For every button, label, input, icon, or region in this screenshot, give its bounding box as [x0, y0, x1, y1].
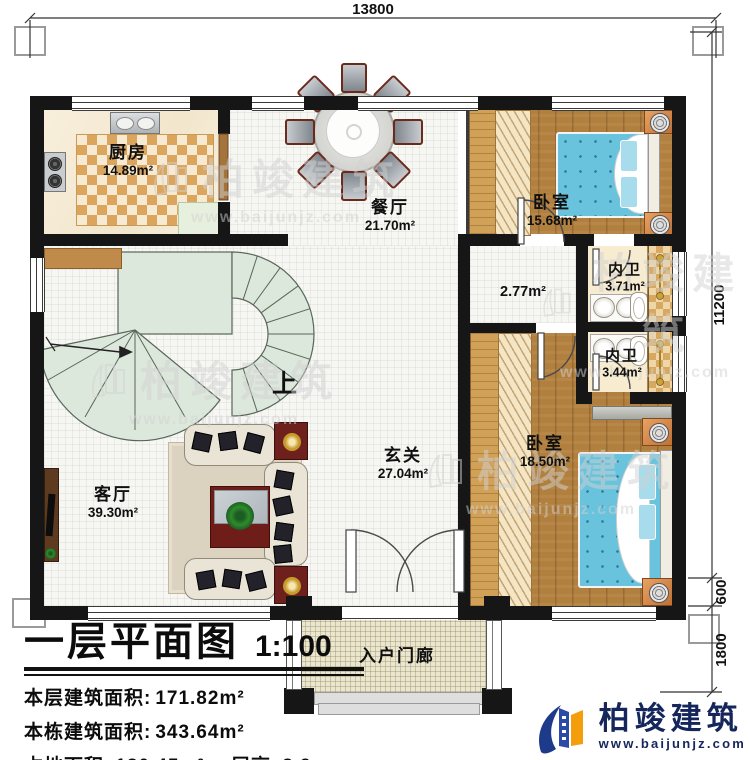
room-label-bath2: 内卫 3.44m²: [602, 345, 642, 380]
brand-name: 柏竣建筑: [599, 703, 746, 736]
room-label-foyer: 玄关27.04m²: [378, 441, 428, 481]
title-block: 一层平面图 1:100 本层建筑面积:171.82m² 本栋建筑面积:343.6…: [24, 622, 396, 760]
building-area-line: 本栋建筑面积:343.64m²: [24, 717, 396, 744]
room-label-living: 客厅39.30m²: [88, 480, 138, 520]
title-rule: [24, 674, 364, 676]
brand-website: www.baijunjz.com: [599, 736, 746, 751]
room-label-bath1: 内卫 3.71m²: [605, 259, 645, 294]
bath1-door-leaf: [593, 249, 599, 285]
dim-right-upper: 11200: [711, 285, 728, 326]
kitchen-door-leaf: [219, 134, 228, 200]
plan-scale: 1:100: [255, 632, 332, 662]
dim-right-lower: 1800: [713, 633, 730, 666]
room-label-bedroom1: 卧室15.68m²: [527, 188, 577, 228]
bedroom2-door-leaf: [538, 333, 544, 379]
room-label-dining: 餐厅21.70m²: [365, 193, 415, 233]
room-label-bedroom2: 卧室18.50m²: [520, 429, 570, 469]
room-label-kitchen: 厨房14.89m²: [103, 138, 153, 178]
title-rule: [24, 667, 364, 671]
plan-title: 一层平面图: [24, 622, 239, 662]
brand-logo-icon: [531, 696, 593, 758]
floor-area-line: 本层建筑面积:171.82m²: [24, 683, 396, 710]
brand-block: 柏竣建筑 www.baijunjz.com: [531, 696, 746, 758]
floor-plan-canvas: 上: [0, 0, 750, 760]
dim-right-mid: 600: [713, 579, 730, 604]
footprint-line: 占地面积:180.45m² 层高:3.9m: [24, 751, 396, 760]
bath2-door-leaf: [593, 354, 599, 390]
room-label-hallway: 2.77m²: [500, 284, 546, 300]
bedroom1-door-leaf: [518, 198, 524, 244]
dim-top: 13800: [352, 1, 394, 18]
entry-door-leaf: [346, 530, 356, 592]
door-arcs: [351, 200, 630, 592]
entry-door-leaf: [454, 530, 464, 592]
